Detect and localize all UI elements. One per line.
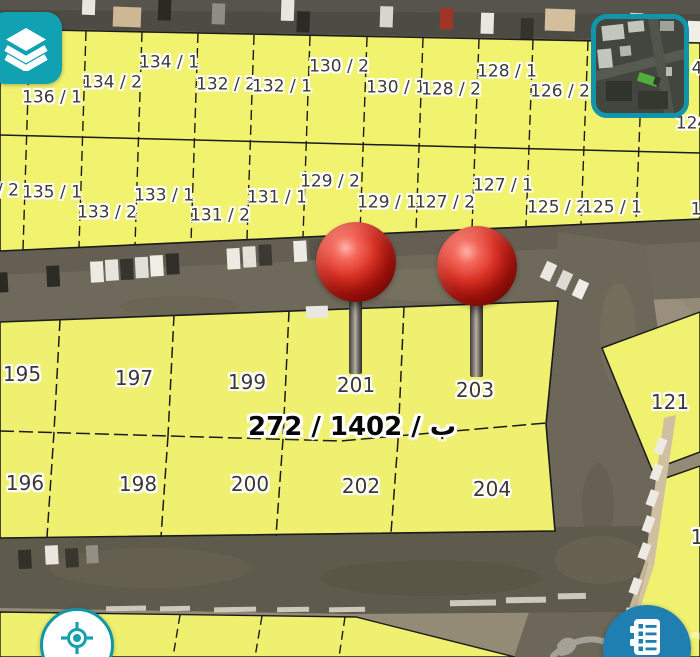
map-pin-left[interactable]	[316, 222, 396, 302]
parcel-label-partial: 1	[691, 202, 700, 219]
highlighted-parcel-label: 272 / 1402 / ب	[248, 414, 456, 440]
parcel-label: 131 / 2	[190, 208, 250, 225]
parcel-label: 204	[473, 479, 511, 499]
pin-ball	[437, 226, 517, 306]
parcel-label: 134 / 2	[82, 75, 142, 92]
parcel-label: 201	[337, 375, 375, 395]
layers-button[interactable]	[0, 12, 62, 84]
parcel-label: 128 / 1	[477, 64, 537, 81]
crosshair-target-icon	[57, 618, 97, 657]
parcel-label: 130 / 1	[366, 80, 426, 97]
parcel-label: 203	[456, 380, 494, 400]
parcel-label: 126 / 2	[530, 84, 590, 101]
parcel-label: 199	[228, 372, 266, 392]
parcel-label: 129 / 1	[357, 195, 417, 212]
parcel-label: 121	[651, 392, 689, 412]
parcel-label-partial: 4	[692, 61, 700, 78]
parcel-label: 135 / 1	[22, 185, 82, 202]
parcel-label: 131 / 1	[247, 190, 307, 207]
parcel-label: 133 / 2	[77, 205, 137, 222]
bottom-road	[0, 526, 670, 614]
map-view[interactable]: 136 / 1 134 / 2 134 / 1 132 / 2 132 / 1 …	[0, 0, 700, 657]
parcel-label: 128 / 2	[421, 82, 481, 99]
parcel-label: 130 / 2	[309, 59, 369, 76]
parcel-label: 136 / 1	[22, 90, 82, 107]
parcel-label-partial: 1	[691, 527, 700, 547]
minimap[interactable]	[591, 14, 689, 118]
parcel-label: 197	[115, 368, 153, 388]
parcel-label: 132 / 2	[196, 77, 256, 94]
parcel-label: 200	[231, 474, 269, 494]
parcel-label: 202	[342, 476, 380, 496]
parcel-label: 125 / 1	[582, 200, 642, 217]
minimap-image	[596, 19, 684, 113]
map-pin-right[interactable]	[437, 226, 517, 306]
pin-stem	[470, 300, 483, 377]
parcel-label: 195	[3, 364, 41, 384]
parcel-label: 129 / 2	[300, 174, 360, 191]
layers-icon	[3, 25, 49, 71]
parcel-label: 134 / 1	[139, 55, 199, 72]
parcel-label: 133 / 1	[134, 188, 194, 205]
parcel-label: 127 / 1	[473, 178, 533, 195]
parcel-label: 196	[6, 473, 44, 493]
parcel-label: 198	[119, 474, 157, 494]
pin-ball	[316, 222, 396, 302]
parcel-label: 127 / 2	[415, 195, 475, 212]
pin-stem	[349, 296, 362, 374]
parcel-label: 132 / 1	[252, 79, 312, 96]
parcel-label-partial: 124	[676, 116, 700, 133]
parcel-label-partial: / 2	[0, 183, 19, 200]
list-form-icon	[627, 617, 667, 657]
parcel-label: 125 / 2	[527, 200, 587, 217]
